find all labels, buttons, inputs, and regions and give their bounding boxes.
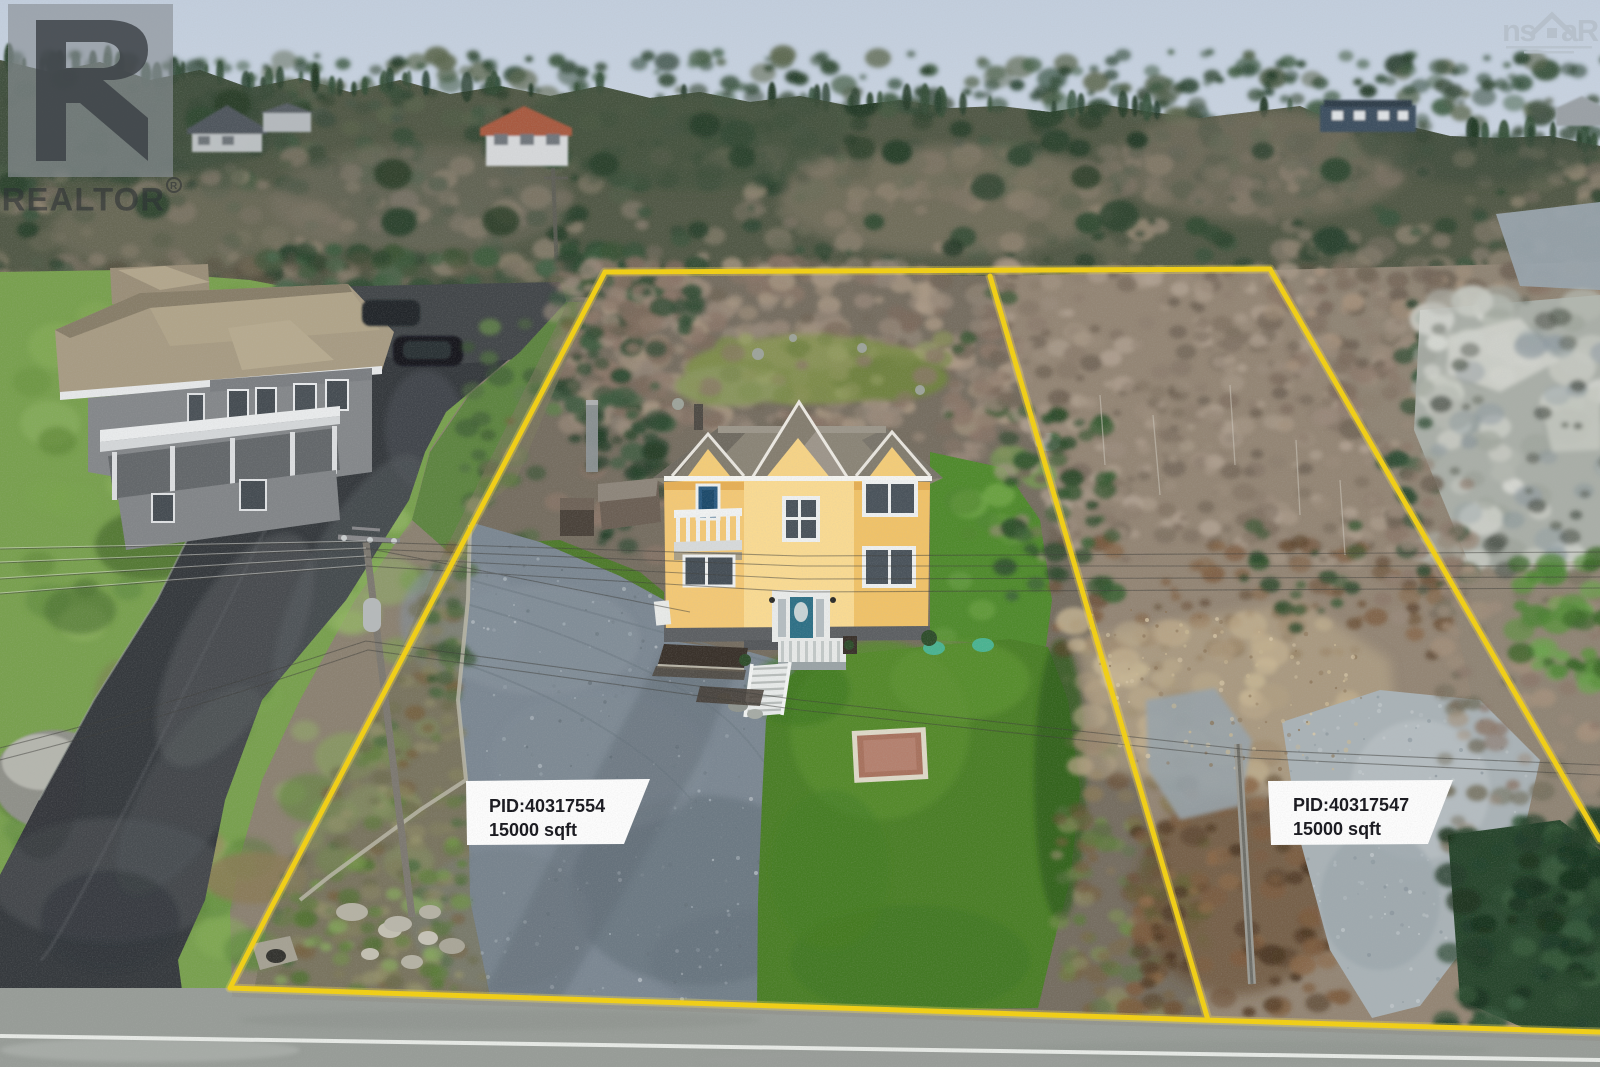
svg-text:ns: ns xyxy=(1502,13,1535,48)
svg-text:REALTOR: REALTOR xyxy=(2,181,165,218)
svg-text:R: R xyxy=(170,181,178,192)
